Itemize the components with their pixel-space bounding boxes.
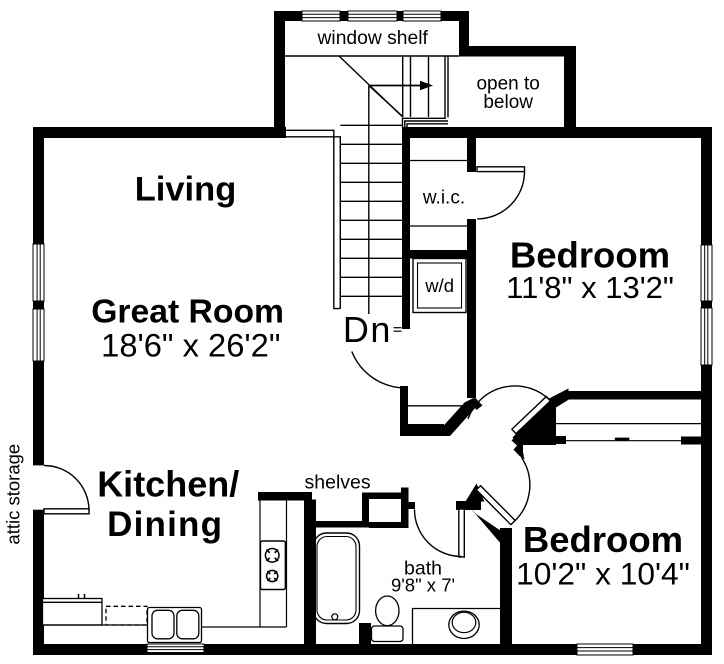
svg-text:w/d: w/d bbox=[424, 275, 454, 296]
svg-text:w.i.c.: w.i.c. bbox=[422, 188, 465, 209]
svg-text:11'8" x 13'2": 11'8" x 13'2" bbox=[506, 270, 674, 305]
svg-text:shelves: shelves bbox=[305, 471, 371, 493]
svg-text:9'8" x 7': 9'8" x 7' bbox=[391, 574, 455, 595]
svg-text:below: below bbox=[483, 92, 533, 113]
svg-text:10'2" x 10'4": 10'2" x 10'4" bbox=[516, 556, 690, 592]
svg-text:window shelf: window shelf bbox=[317, 28, 429, 49]
svg-text:Kitchen/: Kitchen/ bbox=[97, 464, 239, 505]
svg-text:Living: Living bbox=[135, 171, 237, 209]
svg-text:Dining: Dining bbox=[107, 505, 223, 544]
svg-text:Great Room: Great Room bbox=[91, 293, 284, 331]
svg-text:attic storage: attic storage bbox=[3, 444, 24, 545]
svg-text:18'6" x 26'2": 18'6" x 26'2" bbox=[101, 326, 280, 363]
svg-text:Dn: Dn bbox=[343, 309, 392, 350]
svg-text:Bedroom: Bedroom bbox=[523, 519, 683, 560]
